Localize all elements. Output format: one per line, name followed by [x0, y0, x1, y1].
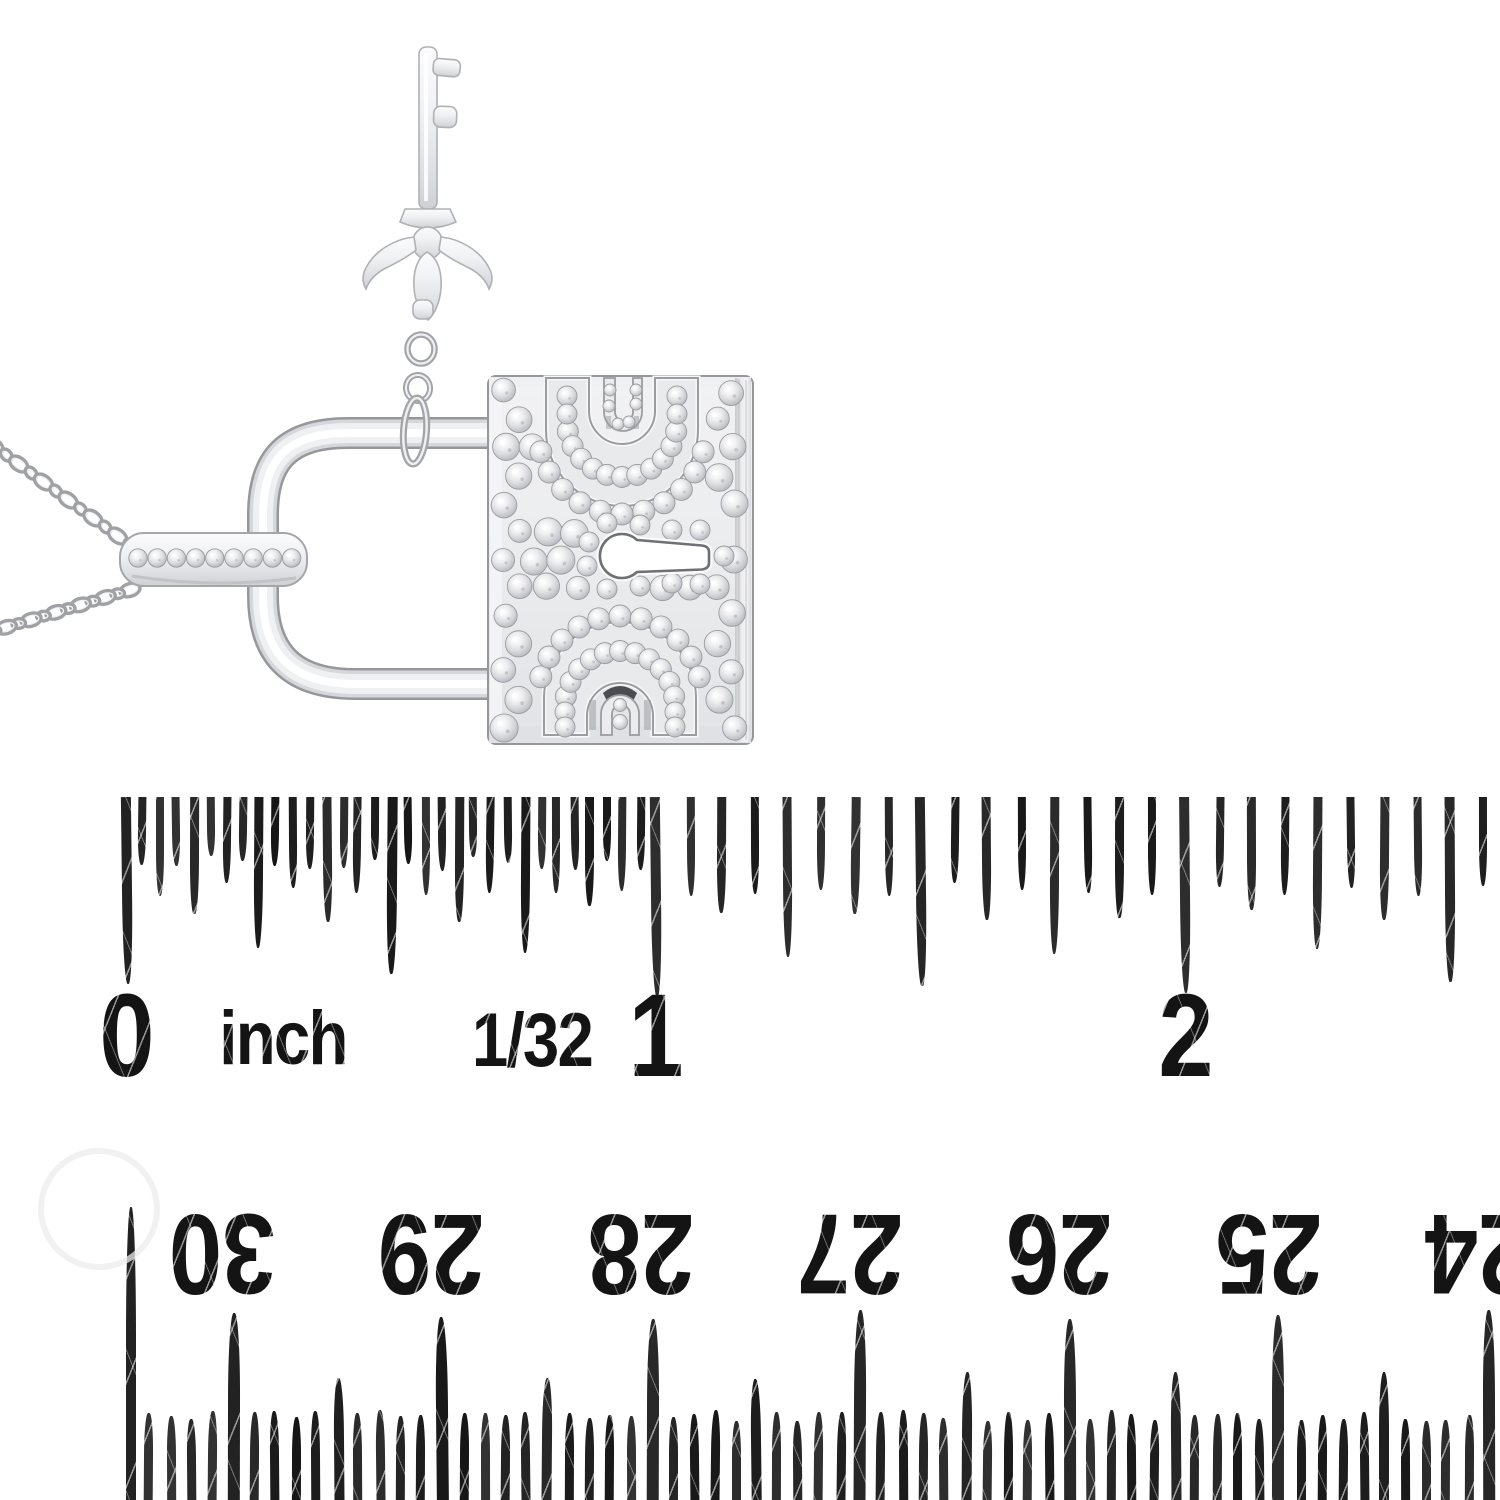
diamond: [665, 717, 685, 737]
diamond: [719, 660, 743, 684]
diamond: [491, 492, 517, 518]
diamond: [533, 573, 559, 599]
inch-tick: [138, 797, 147, 865]
key-collar: [400, 209, 456, 228]
inch-tick: [552, 797, 560, 893]
cm-number: 30: [169, 1196, 276, 1310]
diamond: [282, 549, 300, 567]
diamond: [506, 407, 532, 433]
cm-tick: [1338, 1419, 1347, 1500]
inch-tick: [120, 797, 132, 984]
inch-tick: [288, 797, 297, 888]
cm-tick: [1359, 1412, 1368, 1500]
cm-tick: [1213, 1414, 1222, 1500]
cm-tick: [541, 1378, 552, 1500]
cm-tick: [585, 1418, 594, 1500]
inch-tick: [750, 797, 758, 894]
inch-tick: [585, 797, 594, 906]
cm-tick: [669, 1417, 678, 1500]
diamond: [690, 574, 710, 594]
diamond: [579, 532, 599, 552]
cm-tick: [1190, 1415, 1199, 1500]
diamond: [662, 520, 682, 540]
inch-tick: [570, 797, 579, 870]
diamond: [508, 519, 531, 542]
cm-tick: [481, 1413, 490, 1500]
cm-tick: [1379, 1372, 1389, 1500]
cm-number: 29: [378, 1196, 485, 1310]
lock-body: [488, 376, 753, 744]
inch-tick: [422, 797, 430, 895]
inch-tick: [371, 797, 379, 860]
inch-tick: [915, 797, 927, 986]
cm-tick: [1023, 1420, 1032, 1500]
diamond: [547, 546, 575, 574]
inch-tick: [1215, 797, 1224, 887]
cm-tick: [1465, 1415, 1474, 1500]
photo-artifact-ring: [38, 1148, 160, 1270]
inch-tick: [353, 797, 362, 893]
diamond: [719, 600, 746, 627]
cm-tick: [710, 1410, 719, 1500]
inch-tick: [1049, 797, 1059, 954]
diamond: [491, 658, 516, 683]
inch-tick: [636, 797, 645, 870]
cm-tick: [919, 1413, 928, 1500]
cm-tick: [1297, 1420, 1306, 1500]
diamond: [244, 549, 262, 567]
key-bow-right-petal: [439, 237, 492, 289]
cm-tick: [1317, 1415, 1326, 1500]
diamond: [507, 574, 532, 599]
cm-tick: [1422, 1421, 1431, 1500]
inch-number: 0: [99, 977, 154, 1095]
diamond: [667, 386, 687, 406]
diamond: [706, 407, 729, 430]
cm-tick: [854, 1310, 867, 1500]
inch-tick: [1379, 797, 1388, 920]
scale-fraction-label: 1/32: [472, 1003, 592, 1079]
inch-tick: [270, 797, 279, 866]
cm-number: 27: [797, 1196, 904, 1310]
cm-tick: [500, 1415, 509, 1500]
key-tooth: [433, 58, 461, 77]
inch-tick: [520, 797, 530, 953]
chain-link: [0, 626, 1, 636]
inch-tick: [717, 797, 726, 913]
diamond: [630, 515, 650, 535]
cm-tick: [565, 1413, 574, 1500]
inch-tick: [403, 797, 412, 864]
cm-number: 28: [587, 1196, 694, 1310]
bail: [120, 533, 307, 586]
cm-tick: [982, 1421, 991, 1500]
inch-tick: [982, 797, 991, 920]
diamond: [613, 715, 628, 730]
inch-tick: [469, 797, 477, 857]
cm-tick: [249, 1412, 258, 1500]
diamond: [588, 608, 610, 630]
pendant-illustration: [0, 0, 820, 780]
cm-tick: [208, 1411, 217, 1500]
diamond: [492, 378, 516, 402]
cm-tick: [605, 1415, 614, 1500]
inch-tick: [486, 797, 495, 893]
inch-tick: [1312, 797, 1322, 949]
diamond: [614, 699, 627, 712]
key-tooth: [433, 106, 457, 128]
inch-tick: [339, 797, 348, 868]
inch-tick: [850, 797, 860, 914]
inch-tick: [190, 797, 199, 914]
diamond: [692, 441, 714, 463]
cm-tick: [814, 1412, 823, 1500]
inch-tick: [603, 797, 611, 861]
key-bow-left-petal: [363, 237, 416, 289]
diamond: [557, 386, 577, 406]
key-bow-tab: [413, 300, 433, 319]
diamond: [534, 518, 562, 546]
cm-tick: [415, 1415, 424, 1500]
diamond: [505, 686, 532, 713]
diamond: [684, 461, 706, 483]
inch-tick: [686, 797, 694, 896]
diamond: [566, 576, 589, 599]
diamond: [530, 666, 552, 688]
inch-tick: [322, 797, 332, 922]
diamond: [612, 418, 624, 430]
cm-tick: [311, 1411, 320, 1500]
cm-number: 24: [1425, 1196, 1500, 1310]
inch-tick: [386, 797, 397, 974]
diamond: [704, 630, 730, 656]
diamond: [680, 646, 702, 668]
diamond: [630, 608, 652, 630]
cm-tick: [647, 1319, 660, 1500]
diamond: [662, 573, 682, 593]
inch-tick: [1444, 797, 1454, 982]
diamond: [555, 717, 575, 737]
scene: inch 1/32 012 30292827262524: [0, 0, 1500, 1500]
diamond: [723, 716, 747, 740]
cm-tick: [1272, 1315, 1284, 1500]
necklace-chain: [0, 435, 141, 636]
inch-tick: [1114, 797, 1123, 918]
diamond: [630, 384, 642, 396]
inch-tick: [885, 797, 893, 896]
cm-number: 25: [1215, 1196, 1322, 1310]
cm-tick: [269, 1411, 278, 1500]
diamond: [494, 604, 517, 627]
cm-tick: [1127, 1414, 1136, 1500]
diamond: [225, 549, 243, 567]
diamond: [609, 605, 631, 627]
inch-tick: [503, 797, 512, 863]
cm-tick: [435, 1317, 449, 1500]
cm-tick: [1483, 1310, 1495, 1500]
diamond: [557, 404, 577, 424]
inch-tick: [207, 797, 215, 856]
diamond: [129, 549, 147, 567]
cm-tick: [291, 1417, 300, 1500]
inch-unit-label: inch: [219, 1001, 346, 1077]
cm-tick: [1004, 1412, 1013, 1500]
diamond: [706, 686, 733, 713]
inch-tick: [1017, 797, 1025, 890]
cm-tick: [793, 1421, 802, 1500]
diamond: [720, 433, 746, 459]
inch-tick: [817, 797, 825, 890]
inch-tick: [305, 797, 313, 869]
cm-tick: [876, 1412, 885, 1500]
diamond: [688, 666, 710, 688]
diamond: [186, 549, 204, 567]
cm-tick: [836, 1412, 846, 1500]
diamond: [603, 400, 615, 412]
inch-tick: [223, 797, 232, 883]
diamond: [630, 398, 642, 410]
key-charm: [363, 47, 492, 320]
cm-tick: [750, 1379, 761, 1500]
inch-tick: [1346, 797, 1355, 888]
diamond: [206, 549, 224, 567]
cm-tick: [772, 1412, 781, 1500]
cm-tick: [732, 1421, 741, 1500]
cm-tick: [353, 1413, 362, 1500]
cm-tick: [186, 1419, 195, 1500]
inch-number: 2: [1158, 977, 1213, 1095]
diamond: [568, 616, 590, 638]
lock-top-rim: [489, 377, 751, 387]
inch-tick: [1281, 797, 1290, 895]
cm-tick: [166, 1416, 175, 1500]
cm-tick: [143, 1413, 152, 1500]
cm-tick: [396, 1416, 405, 1500]
inch-tick: [172, 797, 181, 866]
cm-tick: [1063, 1319, 1075, 1500]
cm-tick: [333, 1378, 344, 1500]
diamond: [623, 416, 635, 428]
diamond: [493, 433, 520, 460]
diamond: [721, 490, 748, 517]
diamond: [263, 549, 281, 567]
inch-tick: [618, 797, 627, 891]
cm-tick: [689, 1414, 698, 1500]
cm-tick: [376, 1410, 386, 1500]
diamond: [690, 520, 710, 540]
diamond: [492, 549, 515, 572]
cm-tick: [460, 1413, 469, 1500]
inch-tick: [782, 797, 792, 957]
cm-tick: [228, 1313, 240, 1500]
cm-tick: [521, 1412, 531, 1500]
inch-tick: [951, 797, 960, 883]
inch-tick: [1179, 797, 1191, 993]
inch-tick: [1479, 797, 1487, 886]
diamond: [597, 579, 617, 599]
inch-number: 1: [629, 977, 684, 1095]
cm-tick: [1441, 1420, 1450, 1500]
cm-tick: [1401, 1419, 1410, 1500]
diamond: [506, 463, 532, 489]
chain-link: [0, 618, 18, 636]
inch-tick: [538, 797, 547, 869]
diamond: [714, 546, 734, 566]
diamond: [597, 513, 617, 533]
diamond: [667, 404, 687, 424]
diamond: [167, 549, 185, 567]
diamond: [569, 492, 591, 514]
cm-number: 26: [1006, 1196, 1113, 1310]
cm-tick: [1150, 1420, 1159, 1500]
diamond: [719, 381, 744, 406]
inch-tick: [239, 797, 248, 861]
cm-tick: [1255, 1419, 1264, 1500]
inch-tick: [454, 797, 463, 922]
inch-tick: [437, 797, 446, 871]
cm-tick: [1086, 1419, 1095, 1500]
diamond: [520, 548, 547, 575]
cm-tick: [961, 1372, 972, 1500]
cm-tick: [939, 1418, 948, 1500]
inch-tick: [1148, 797, 1156, 895]
inch-tick: [1413, 797, 1422, 896]
cm-tick: [899, 1410, 908, 1500]
inch-tick: [1083, 797, 1092, 893]
diamond: [530, 441, 552, 463]
diamond: [577, 556, 597, 576]
diamond: [505, 631, 531, 657]
diamond: [604, 384, 616, 396]
cm-tick: [1170, 1372, 1181, 1500]
cm-tick: [627, 1416, 636, 1500]
cm-tick: [1107, 1410, 1116, 1500]
diamond: [490, 714, 518, 742]
cm-tick: [1233, 1413, 1242, 1500]
inch-tick: [1247, 797, 1256, 910]
diamond: [705, 464, 733, 492]
cm-tick: [1045, 1413, 1054, 1500]
inch-tick: [156, 797, 164, 896]
inch-tick: [254, 797, 264, 948]
diamond: [148, 549, 166, 567]
inch-tick: [650, 797, 662, 997]
